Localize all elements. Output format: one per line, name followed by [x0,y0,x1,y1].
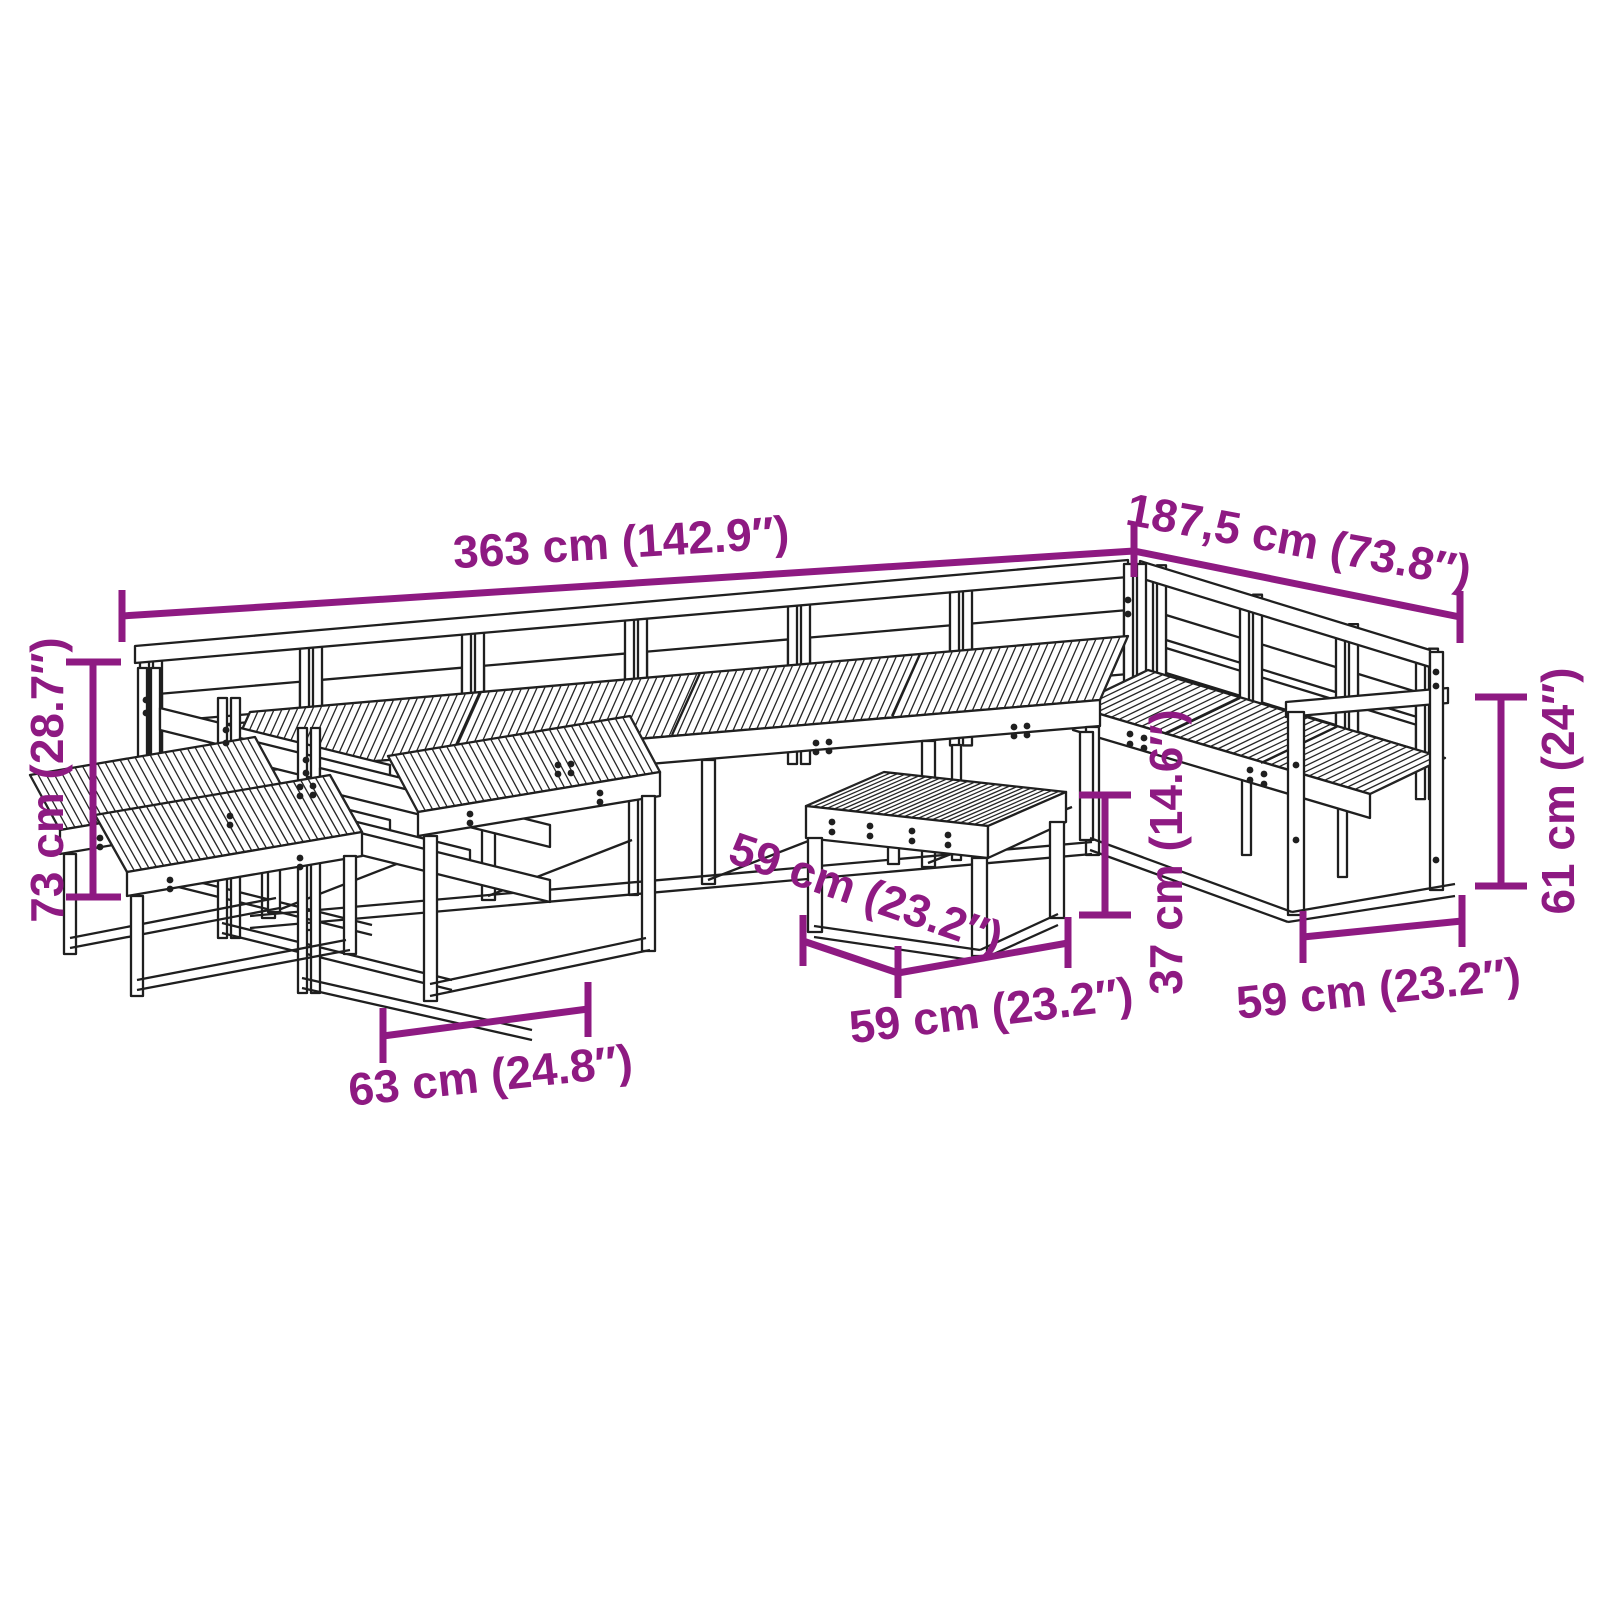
dim-left-module-depth: 63 cm (24.8″) [346,982,635,1116]
sofa-line-art [30,560,1455,1040]
garden-lounge-set-drawing: 363 cm (142.9″) 187,5 cm (73.8″) 73 cm (… [0,0,1600,1600]
dim-right-module-width: 59 cm (23.2″) [1234,895,1523,1029]
table-height-label: 37 cm (14.6″) [1140,709,1192,994]
table-width-label: 59 cm (23.2″) [846,967,1136,1053]
dim-armrest-height: 61 cm (24″) [1475,667,1584,914]
overall-width-label: 363 cm (142.9″) [451,506,790,578]
dimension-diagram: 363 cm (142.9″) 187,5 cm (73.8″) 73 cm (… [0,0,1600,1600]
overall-height-label: 73 cm (28.7″) [21,637,73,922]
armrest-height-label: 61 cm (24″) [1532,667,1584,914]
left-module-depth-label: 63 cm (24.8″) [346,1034,635,1116]
right-module-width-label: 59 cm (23.2″) [1234,947,1523,1029]
